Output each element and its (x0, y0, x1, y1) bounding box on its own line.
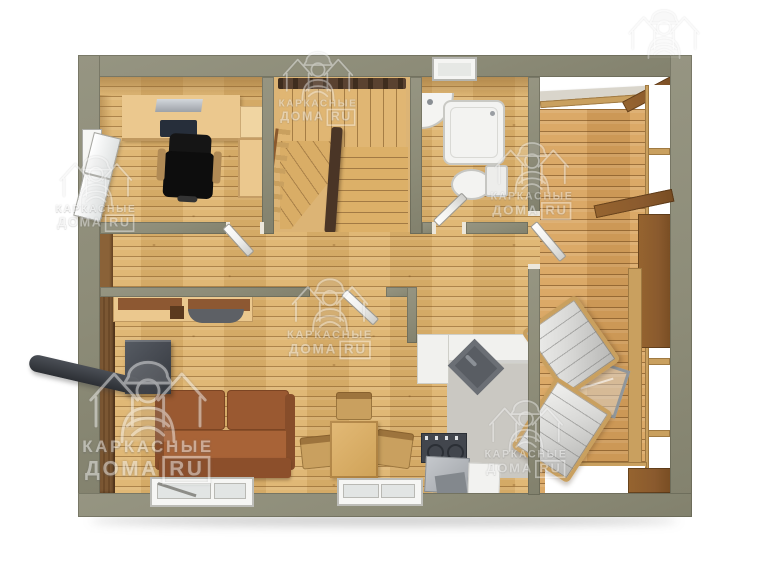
office-chair (154, 130, 224, 205)
wall-shelf (155, 99, 203, 112)
exterior-wall-left (78, 55, 100, 517)
staircase-lower-flight (332, 147, 408, 232)
south-window-left (150, 477, 254, 507)
tv-console-box (170, 306, 184, 319)
dining-table (330, 421, 378, 478)
office-chair-armrest-left (156, 148, 166, 180)
tv-screen (188, 309, 244, 323)
office-chair-seat (162, 151, 214, 200)
wall-terrace-north-seg (528, 77, 540, 215)
dining-chair-east (373, 429, 415, 470)
kitchen-cabinet-white (467, 462, 500, 495)
dining-chair-north (336, 392, 372, 420)
wall-office-stairs (262, 77, 274, 234)
exterior-wall-top (78, 55, 692, 77)
wall-office-south (100, 222, 228, 234)
toilet-tank (485, 165, 508, 197)
wall-bathroom-south-right (466, 222, 528, 234)
stair-top-railing (278, 78, 406, 89)
bathroom-window-pane (438, 63, 471, 76)
builder-mascot-icon (627, 2, 702, 60)
bathroom-window (432, 57, 477, 81)
office-chair-armrest-right (212, 151, 222, 183)
shower-drain (490, 111, 495, 116)
wall-hall-living (100, 287, 310, 297)
terrace-door-jamb-bottom (528, 264, 540, 269)
shower-tray (443, 100, 505, 165)
wall-stairs-bathroom (410, 77, 422, 234)
sink-faucet (427, 99, 433, 105)
wall-terrace-south-seg (528, 266, 540, 495)
staircase-upper-flight (280, 82, 406, 148)
terrace-east-plank (638, 214, 672, 348)
south-window-right (337, 478, 423, 506)
sofa-front (159, 458, 291, 478)
hall-west-wall-face (100, 232, 113, 290)
south-window-left-pane-b (214, 483, 246, 499)
terrace-east-rail-2 (648, 358, 670, 365)
sofa-back-cushion-left (163, 390, 225, 430)
south-window-right-pane-b (381, 484, 415, 498)
watermark: КАРКАСНЫЕ ДОМА RU (627, 2, 702, 60)
casement-window-divider (85, 172, 111, 180)
terrace-east-rail-1 (648, 148, 670, 155)
exterior-wall-right (670, 55, 692, 517)
office-north-wall-face (100, 77, 262, 97)
wall-kitchen-stub (407, 287, 417, 343)
stove-knobs (425, 436, 463, 440)
office-chair-base (177, 195, 197, 202)
kitchen-sink-faucet (465, 354, 478, 367)
south-window-right-pane-a (343, 484, 379, 498)
floor-plan-canvas: КАРКАСНЫЕ ДОМА RU КАРКАСНЫЕ ДОМА RU (0, 0, 768, 576)
terrace-door-jamb-top (528, 211, 540, 216)
terrace-east-rail-3 (648, 430, 670, 437)
office-door-jamb-right (260, 222, 264, 234)
sofa (155, 388, 295, 480)
sofa-seat (163, 430, 287, 460)
terrace-south-corner (628, 468, 672, 493)
kitchen-counter-west (417, 334, 449, 384)
bathroom-door-jamb-right (462, 222, 466, 234)
sofa-back-cushion-right (227, 390, 289, 430)
staircase (274, 77, 410, 232)
